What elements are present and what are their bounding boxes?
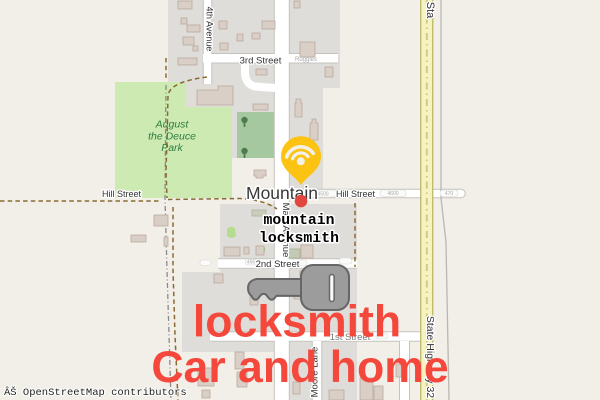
svg-text:ÂŠ OpenStreetMap contributors: ÂŠ OpenStreetMap contributors [4, 385, 187, 399]
svg-text:Sta: Sta [424, 2, 436, 19]
svg-text:3rd Street: 3rd Street [240, 56, 282, 67]
svg-text:4500: 4500 [317, 192, 328, 198]
svg-text:Hill Street: Hill Street [102, 189, 142, 199]
svg-text:Hill Street: Hill Street [336, 189, 376, 199]
svg-text:locksmith: locksmith [193, 297, 401, 346]
svg-text:Park: Park [161, 142, 183, 154]
svg-text:456: 456 [247, 260, 256, 266]
svg-text:Car and home: Car and home [151, 343, 448, 392]
svg-text:Ruggles: Ruggles [295, 57, 317, 63]
svg-text:4600: 4600 [387, 191, 398, 197]
svg-text:mountain: mountain [263, 213, 334, 229]
svg-text:2nd Street: 2nd Street [256, 259, 300, 270]
svg-text:Main Avenue: Main Avenue [280, 203, 291, 258]
svg-text:locksmith: locksmith [259, 231, 339, 247]
svg-text:the Deuce: the Deuce [148, 131, 196, 143]
svg-text:August: August [155, 119, 190, 131]
svg-text:470: 470 [445, 191, 454, 197]
svg-text:4th Avenue: 4th Avenue [205, 7, 215, 52]
